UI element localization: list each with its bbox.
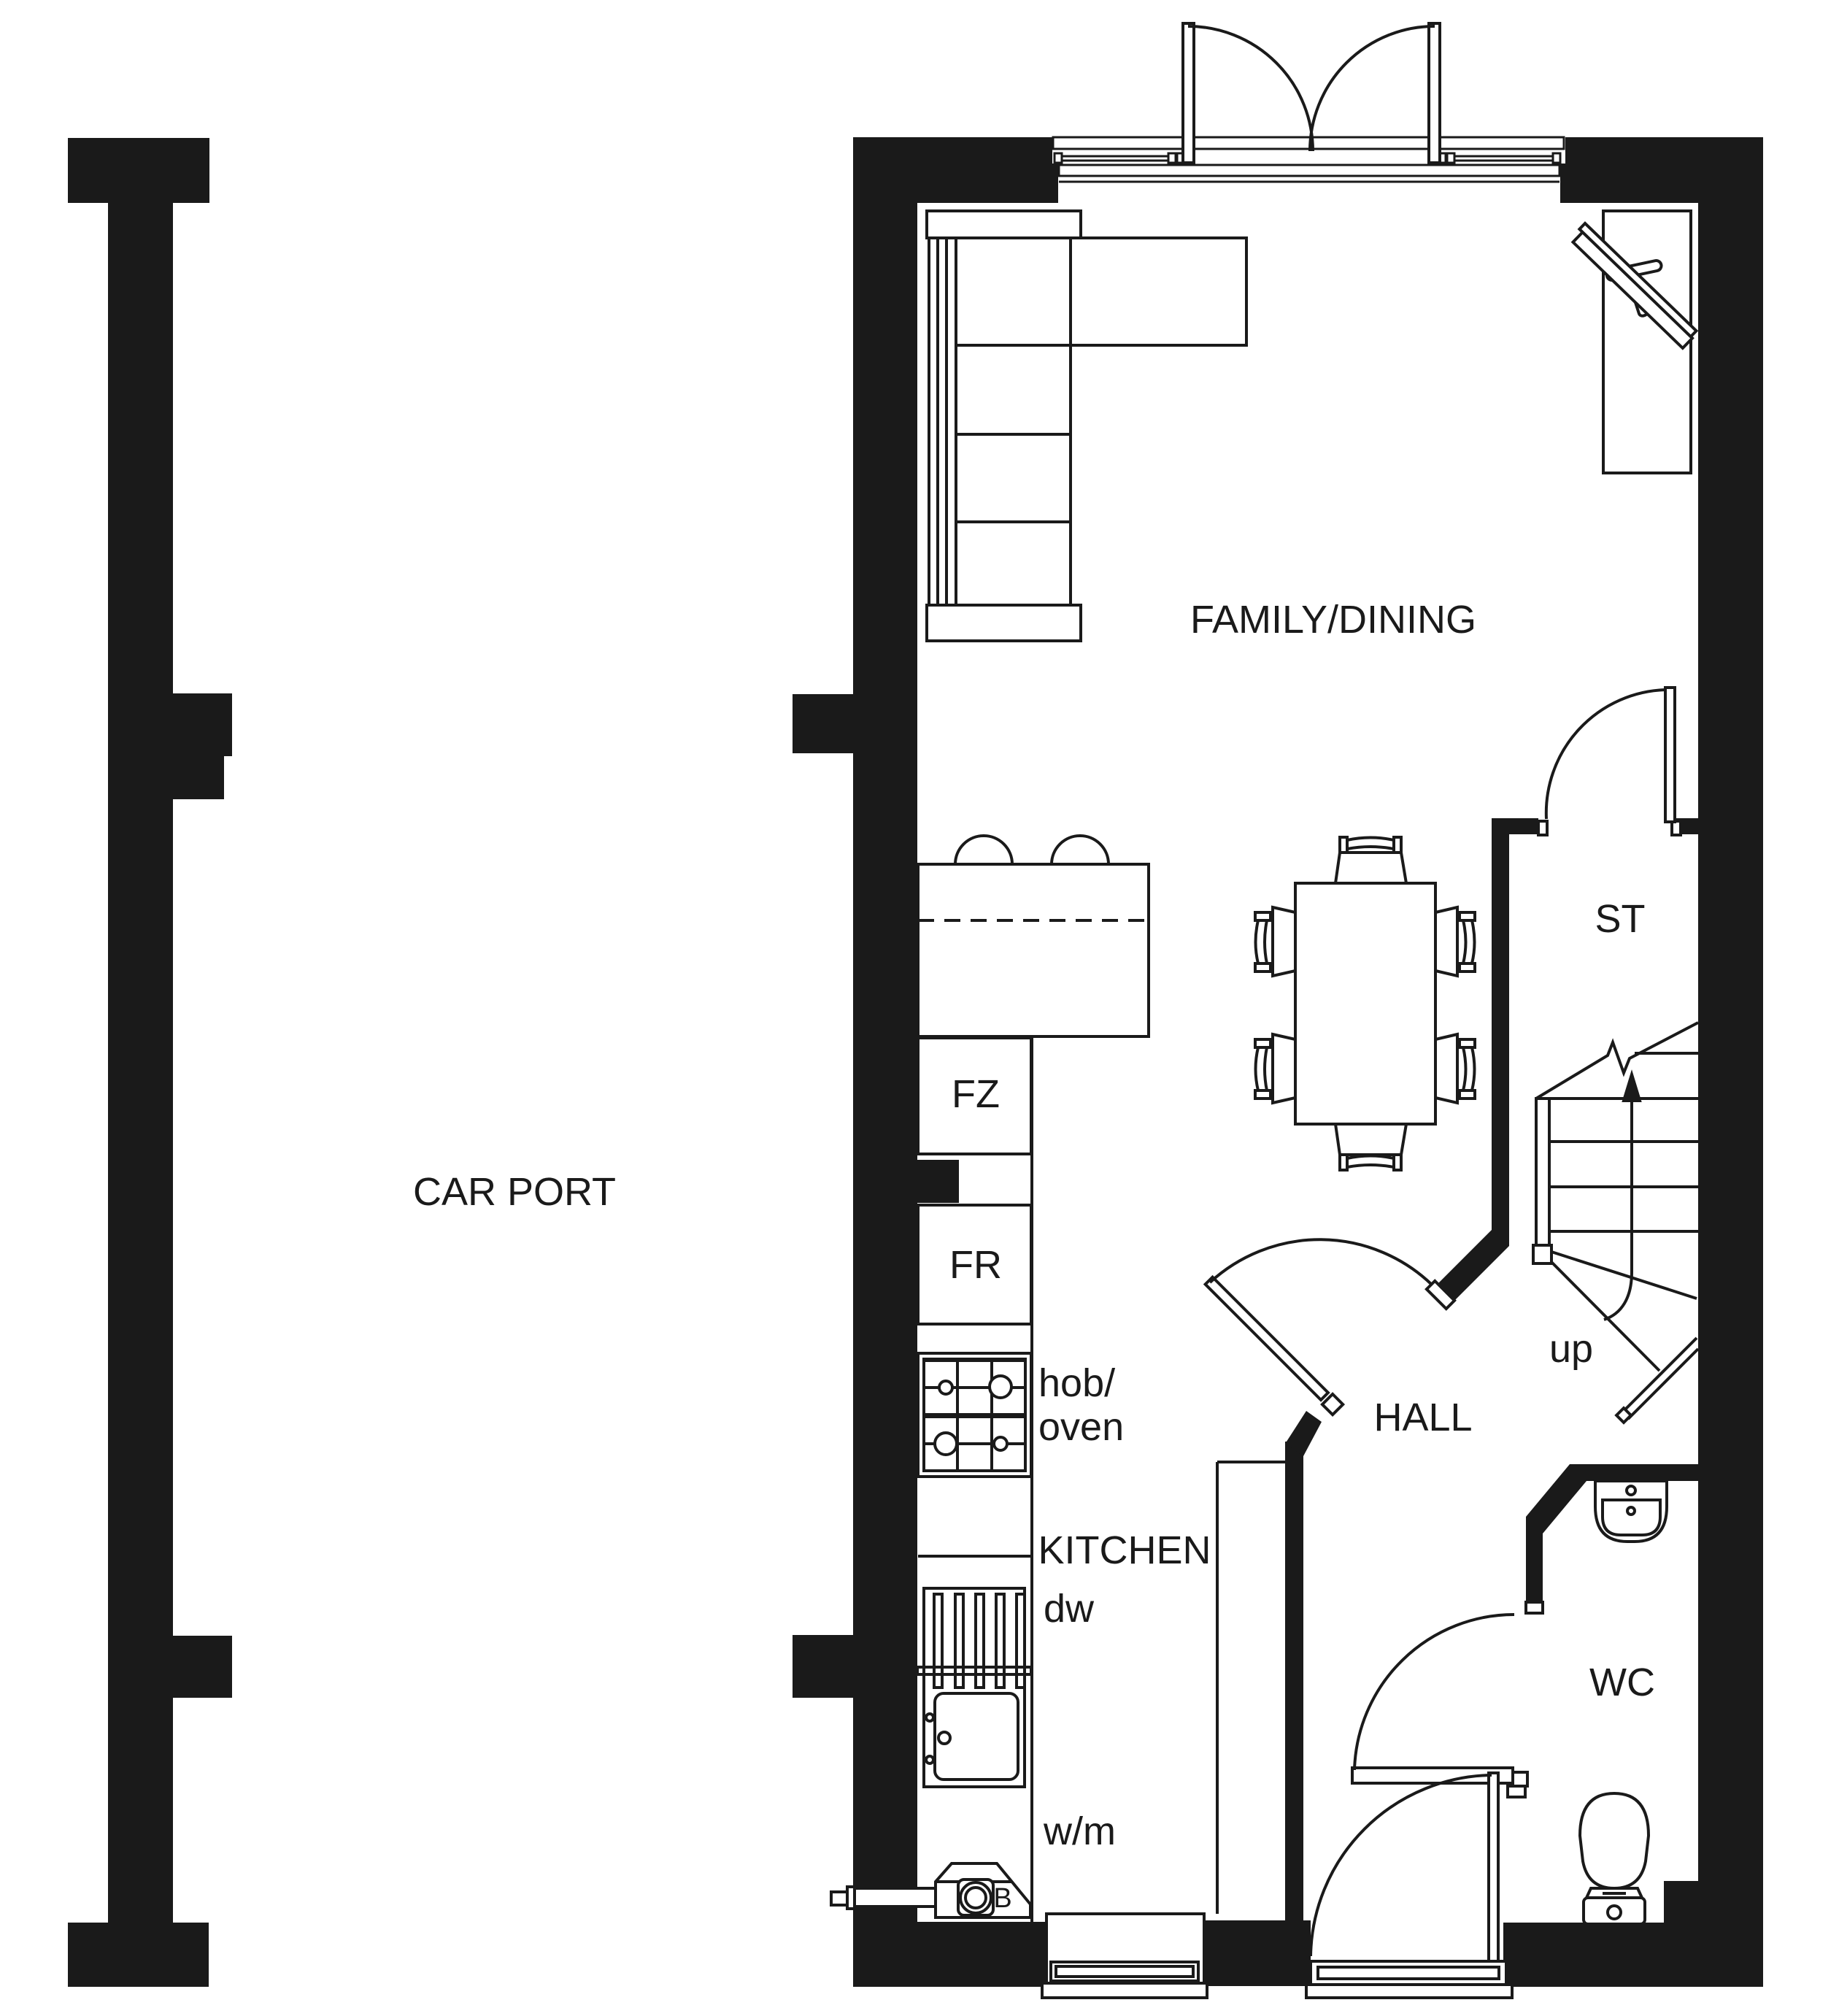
svg-text:oven: oven [1038,1405,1124,1449]
svg-text:FR: FR [949,1243,1002,1287]
svg-text:KITCHEN: KITCHEN [1038,1528,1211,1572]
svg-text:WC: WC [1589,1661,1655,1704]
svg-text:HALL: HALL [1373,1396,1472,1439]
svg-text:up: up [1549,1327,1593,1371]
svg-text:ST: ST [1595,897,1645,941]
svg-text:hob/: hob/ [1038,1361,1115,1405]
svg-text:FZ: FZ [952,1072,1000,1116]
svg-text:dw: dw [1044,1587,1095,1631]
svg-text:FAMILY/DINING: FAMILY/DINING [1190,598,1476,642]
svg-text:w/m: w/m [1043,1809,1116,1853]
svg-text:CAR PORT: CAR PORT [413,1170,616,1214]
svg-text:B: B [993,1883,1011,1914]
